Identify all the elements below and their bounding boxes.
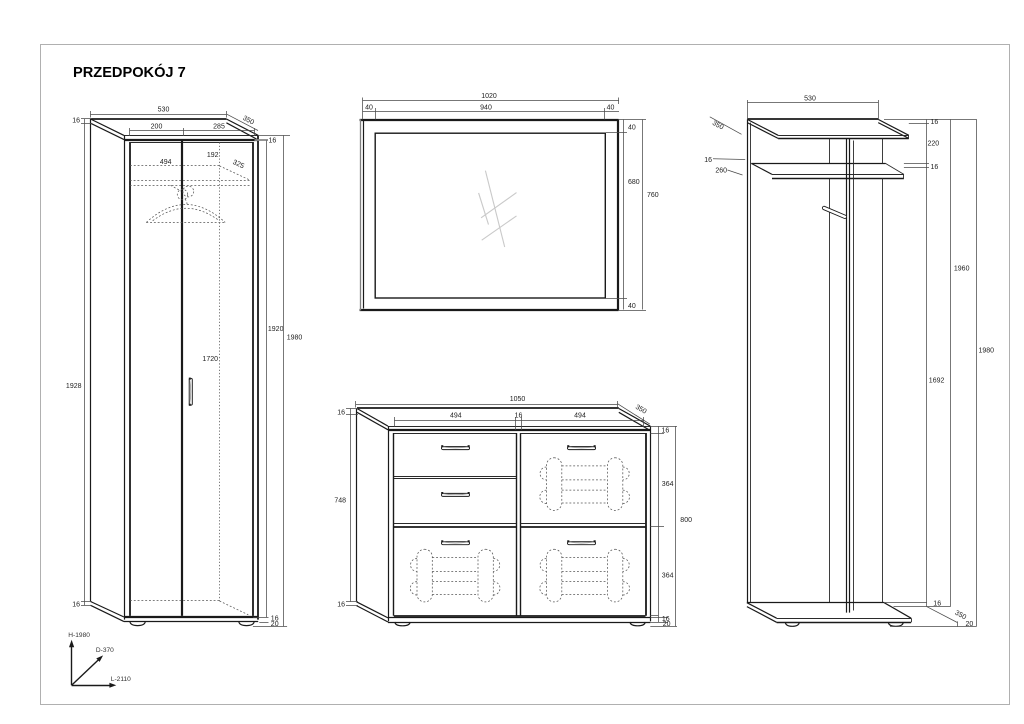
svg-text:200: 200: [151, 124, 163, 131]
svg-text:16: 16: [704, 157, 712, 164]
svg-text:760: 760: [647, 192, 659, 199]
svg-text:16: 16: [72, 118, 80, 125]
svg-text:16: 16: [337, 602, 345, 609]
svg-text:40: 40: [365, 105, 373, 112]
svg-text:494: 494: [450, 413, 462, 420]
svg-text:H-1980: H-1980: [68, 632, 90, 639]
svg-text:D-370: D-370: [96, 647, 114, 654]
svg-text:16: 16: [931, 164, 939, 171]
svg-text:PRZEDPOKÓJ 7: PRZEDPOKÓJ 7: [73, 63, 186, 81]
svg-text:20: 20: [271, 621, 279, 628]
svg-text:1980: 1980: [979, 348, 995, 355]
svg-text:260: 260: [715, 168, 727, 175]
svg-text:220: 220: [928, 141, 940, 148]
svg-text:530: 530: [158, 107, 170, 114]
svg-text:40: 40: [628, 125, 636, 132]
svg-text:1720: 1720: [202, 356, 218, 363]
svg-text:680: 680: [628, 179, 640, 186]
svg-text:192: 192: [207, 152, 219, 159]
svg-text:494: 494: [160, 159, 172, 166]
svg-text:1020: 1020: [481, 93, 497, 100]
svg-text:285: 285: [213, 124, 225, 131]
svg-text:16: 16: [933, 601, 941, 608]
svg-text:364: 364: [662, 572, 674, 579]
svg-text:16: 16: [337, 410, 345, 417]
svg-text:16: 16: [269, 137, 277, 144]
svg-text:800: 800: [680, 517, 692, 524]
svg-text:1920: 1920: [268, 326, 284, 333]
svg-text:1960: 1960: [954, 266, 970, 273]
svg-text:1928: 1928: [66, 383, 82, 390]
svg-text:494: 494: [574, 413, 586, 420]
svg-text:364: 364: [662, 481, 674, 488]
svg-text:940: 940: [480, 105, 492, 112]
svg-text:16: 16: [931, 119, 939, 126]
svg-text:16: 16: [515, 413, 523, 420]
svg-text:1692: 1692: [929, 377, 945, 384]
svg-text:16: 16: [72, 602, 80, 609]
svg-text:16: 16: [662, 428, 670, 435]
svg-text:530: 530: [804, 96, 816, 103]
svg-text:40: 40: [628, 303, 636, 310]
svg-text:L-2110: L-2110: [111, 676, 131, 683]
svg-text:40: 40: [607, 105, 615, 112]
svg-text:20: 20: [966, 621, 974, 628]
svg-text:1980: 1980: [287, 335, 303, 342]
svg-text:748: 748: [334, 497, 346, 504]
svg-text:1050: 1050: [510, 396, 526, 403]
svg-text:20: 20: [663, 621, 671, 628]
